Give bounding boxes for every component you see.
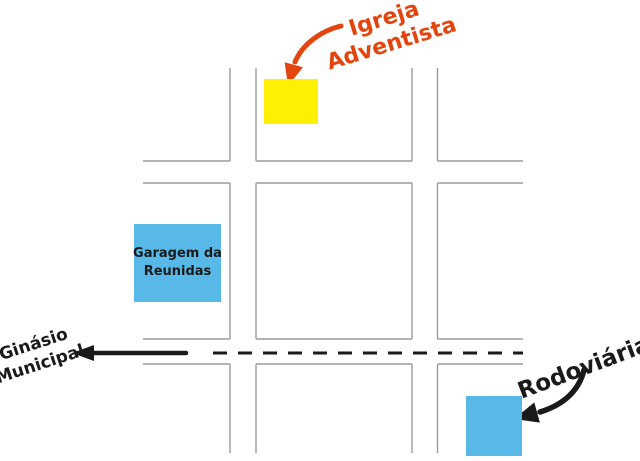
rodoviaria-building-marker xyxy=(466,396,522,456)
map-canvas: Garagem da Reunidas Igreja Adventista Gi… xyxy=(0,0,640,461)
garagem-building-marker: Garagem da Reunidas xyxy=(134,224,221,302)
igreja-building-marker xyxy=(264,79,318,124)
garagem-label-line2: Reunidas xyxy=(144,263,212,281)
garagem-label-line1: Garagem da xyxy=(133,245,222,263)
